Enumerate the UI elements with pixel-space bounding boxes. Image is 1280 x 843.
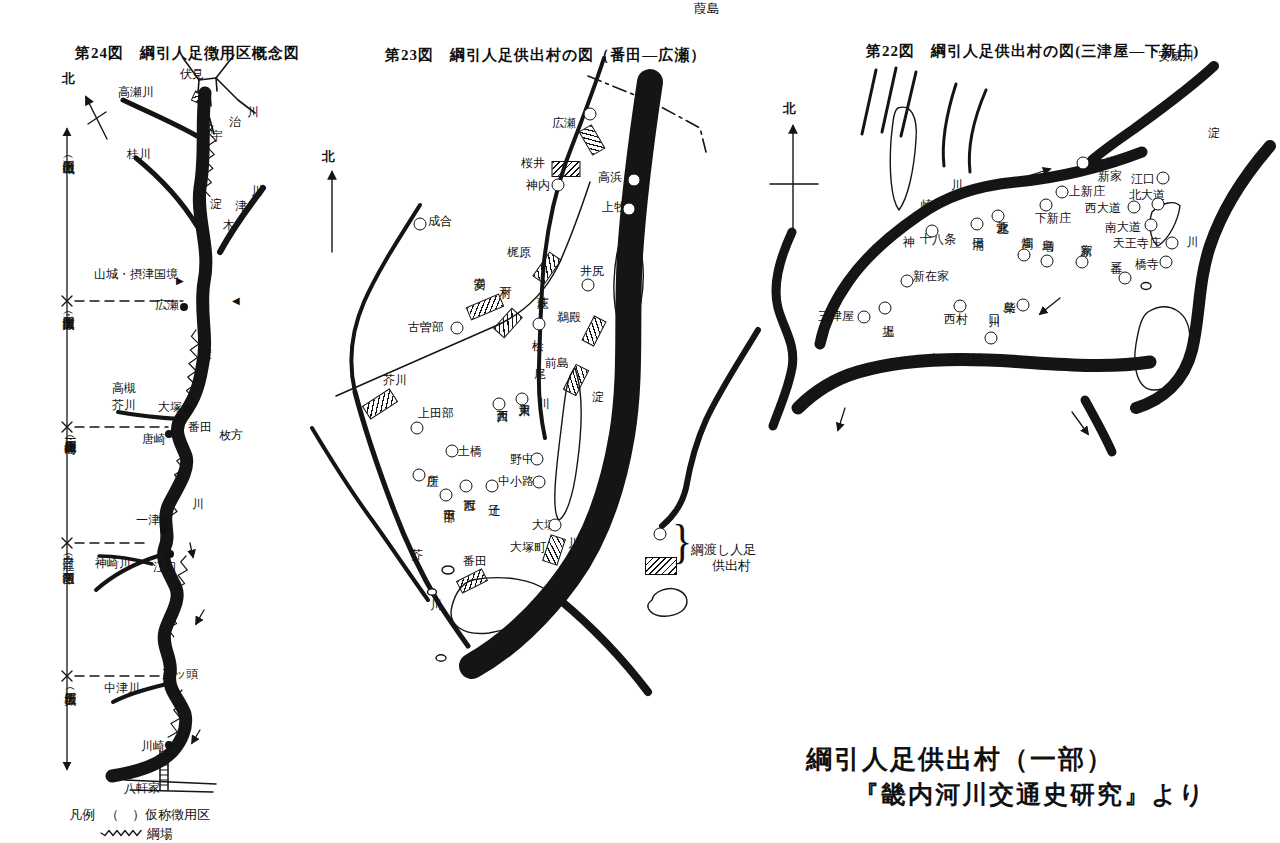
village-circle-marker (460, 480, 473, 493)
place-label: 番田 (463, 555, 487, 568)
supply-village-hatch-marker (552, 161, 581, 177)
place-label: 大塚 (158, 401, 182, 414)
place-label: 高瀬川 (118, 86, 154, 99)
village-circle-marker (1018, 249, 1031, 262)
place-label: 淀 (210, 198, 222, 211)
place-label: 桜井 (521, 157, 545, 170)
caption-line1: 綱引人足供出村（一部） (806, 742, 1114, 777)
village-circle-marker (584, 108, 597, 121)
place-label: 宇 (211, 130, 223, 143)
village-circle-marker (1017, 299, 1030, 312)
village-circle-marker (1040, 199, 1053, 212)
place-label: 下新庄 (1035, 212, 1071, 225)
village-dot-marker (166, 550, 174, 558)
place-label: 淀 (200, 348, 212, 361)
map24-north-label: 北 (62, 70, 75, 88)
place-label: 木 (223, 219, 235, 232)
place-label: 淀 (592, 391, 604, 404)
village-dot-marker (160, 526, 168, 534)
place-label: 中津川 (928, 353, 991, 366)
place-label: 川崎 (141, 740, 165, 753)
legend-supply-village-line2: 供出村 (712, 557, 751, 575)
village-circle-marker (623, 203, 636, 216)
village-dot-marker (165, 430, 173, 438)
place-label: 土橋 (458, 445, 482, 458)
place-label: 広瀬 (155, 299, 179, 312)
place-label: 新在家 (913, 270, 949, 283)
place-label: 川 (951, 179, 963, 192)
place-label: 中津川 (104, 682, 140, 695)
place-label: 広瀬 (552, 117, 576, 130)
place-label: 天王寺庄 (1113, 237, 1161, 250)
village-dot-marker (180, 303, 188, 311)
village-circle-marker (992, 210, 1005, 223)
village-circle-marker (1076, 256, 1089, 269)
village-circle-marker (451, 322, 464, 335)
village-dot-marker (184, 405, 192, 413)
place-label: 十八条 (920, 233, 956, 246)
village-circle-marker (1166, 237, 1179, 250)
village-circle-marker (1119, 272, 1132, 285)
village-circle-marker (414, 218, 427, 231)
legend-brace: } (672, 514, 692, 569)
village-circle-marker (440, 489, 453, 502)
place-label: 川 (568, 537, 580, 550)
village-circle-marker (926, 225, 939, 238)
place-label: 桧 (532, 340, 544, 353)
place-label: 川 (247, 106, 259, 119)
place-label: 崎 (921, 199, 933, 212)
village-circle-marker (954, 300, 967, 313)
place-label: 西村 (944, 313, 968, 326)
place-label: 橋寺 (1135, 258, 1159, 271)
village-circle-marker (1128, 201, 1141, 214)
village-circle-marker (552, 179, 565, 192)
village-circle-marker (1152, 198, 1165, 211)
place-label: 上新庄 (1069, 185, 1105, 198)
place-label: 高浜 (598, 171, 622, 184)
place-label: 芥川 (383, 374, 407, 387)
village-circle-marker (971, 218, 984, 231)
place-label: 一津屋 (136, 514, 172, 527)
caption-line2: 『畿内河川交通史研究』より (854, 778, 1206, 811)
place-label: 成合 (428, 215, 452, 228)
village-circle-marker (879, 302, 892, 315)
village-dot-marker (165, 741, 173, 749)
place-label: 神 (903, 236, 915, 249)
village-circle-marker (533, 476, 546, 489)
place-label: 川 (251, 185, 263, 198)
place-label: ◀ (232, 296, 240, 307)
place-label: 川 (192, 498, 204, 511)
scanned-map-page: 第24図 綱引人足徴用区概念図 第23図 綱引人足供出村の図（番田—広瀬） 第2… (0, 0, 1280, 843)
map24-title: 第24図 綱引人足徴用区概念図 (75, 44, 300, 63)
village-circle-marker (413, 469, 426, 482)
village-circle-marker (654, 528, 667, 541)
place-label: 江口 (153, 561, 177, 574)
place-label: 新家 (1098, 170, 1122, 183)
village-circle-marker (1041, 255, 1054, 268)
place-label: 芥川 (112, 399, 136, 412)
place-label: 治 (229, 116, 241, 129)
place-label: 芥 (411, 549, 423, 562)
place-label: 津 (235, 200, 247, 213)
place-label: 唐崎 (142, 433, 166, 446)
place-label: 川 (538, 398, 550, 411)
legend-reed-island-label: 葭島 (694, 0, 720, 18)
village-circle-marker (628, 174, 641, 187)
place-label: 三ッ頭 (162, 668, 198, 681)
village-circle-marker (1160, 256, 1173, 269)
place-label: 八軒家 (124, 782, 160, 795)
place-label: 神崎川 (95, 557, 131, 570)
place-label: 川 (430, 599, 442, 612)
place-label: 山城・摂津国境 (94, 268, 178, 281)
legend-main-rope-item: 綱場 (147, 825, 173, 843)
place-label: 西大道 (1085, 202, 1121, 215)
place-label: 高槻 (112, 382, 136, 395)
village-circle-marker (533, 318, 546, 331)
village-circle-marker (493, 398, 506, 411)
village-circle-marker (549, 519, 562, 532)
place-label: 桂川 (127, 148, 151, 161)
place-label: 三津屋 (818, 310, 854, 323)
village-circle-marker (901, 275, 914, 288)
map22-title: 第22図 綱引人足供出村の図(三津屋—下新庄) (866, 42, 1199, 61)
village-dot-marker (175, 414, 183, 422)
village-circle-marker (1145, 219, 1158, 232)
village-circle-marker (531, 453, 544, 466)
place-label: 梶原 (507, 246, 531, 259)
place-label: 番田 (188, 421, 212, 434)
village-circle-marker (1077, 157, 1090, 170)
place-label: 古曽部 (408, 321, 444, 334)
map23-north-label: 北 (322, 148, 335, 166)
map22-north-label: 北 (783, 100, 796, 118)
place-label: 江口 (1131, 173, 1155, 186)
village-circle-marker (985, 332, 998, 345)
village-circle-marker (858, 311, 871, 324)
village-circle-marker (411, 422, 424, 435)
place-label: 上田部 (418, 407, 454, 420)
place-label: 神内 (526, 179, 550, 192)
place-label: ▶ (176, 276, 184, 287)
place-label: 大塚町 (510, 541, 546, 554)
village-circle-marker (1157, 172, 1170, 185)
place-label: 淀 (1208, 127, 1220, 140)
place-label: 大道 (1094, 156, 1118, 169)
map23-title: 第23図 綱引人足供出村の図（番田—広瀬） (385, 46, 706, 65)
place-label: 中小路 (498, 475, 534, 488)
village-circle-marker (1056, 186, 1069, 199)
village-circle-marker (516, 393, 529, 406)
legend-main-title: 凡例 (69, 806, 95, 824)
legend-main-paren-item: （ ）仮称徴用区 (106, 806, 210, 824)
village-circle-marker (582, 279, 595, 292)
place-label: 井尻 (580, 265, 604, 278)
place-label: 伏見 (180, 68, 204, 81)
place-label: 枚方 (219, 429, 243, 442)
village-circle-marker (486, 480, 499, 493)
place-label: 鵜殿 (557, 311, 581, 324)
place-label: （江口・三ッ頭徴用区） (62, 550, 75, 564)
village-circle-marker (446, 445, 459, 458)
place-label: 南大道 (1105, 221, 1141, 234)
place-label: 安威川 (1158, 50, 1194, 63)
place-label: 前島 (545, 357, 569, 370)
